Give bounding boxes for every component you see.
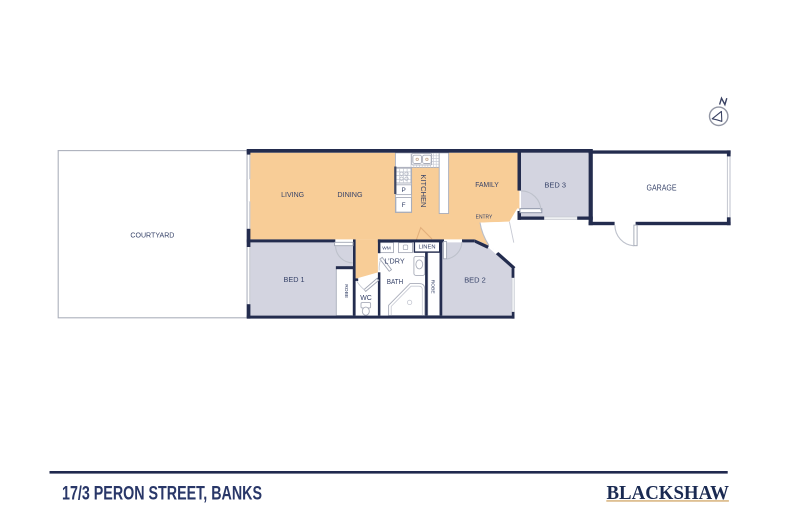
svg-text:WC: WC <box>360 293 372 302</box>
svg-text:L’DRY: L’DRY <box>384 257 404 266</box>
svg-text:COURTYARD: COURTYARD <box>130 230 174 239</box>
svg-text:DINING: DINING <box>337 190 362 199</box>
svg-text:BED 2: BED 2 <box>464 276 486 285</box>
svg-text:LIVING: LIVING <box>281 190 304 199</box>
svg-text:17/3 PERON STREET, BANKS: 17/3 PERON STREET, BANKS <box>62 483 262 504</box>
svg-text:P: P <box>401 187 405 194</box>
svg-text:LINEN: LINEN <box>419 245 436 251</box>
svg-text:ROBE: ROBE <box>343 284 349 299</box>
svg-text:F: F <box>402 202 406 209</box>
svg-text:BED 3: BED 3 <box>544 180 566 189</box>
svg-text:FAMILY: FAMILY <box>475 180 499 189</box>
svg-text:BED 1: BED 1 <box>284 275 305 284</box>
svg-text:KITCHEN: KITCHEN <box>419 174 428 207</box>
svg-text:GARAGE: GARAGE <box>647 184 677 193</box>
svg-text:ENTRY: ENTRY <box>476 214 493 220</box>
svg-text:BATH: BATH <box>387 279 404 286</box>
svg-text:ROBE: ROBE <box>430 280 436 295</box>
svg-text:WM: WM <box>382 245 391 251</box>
